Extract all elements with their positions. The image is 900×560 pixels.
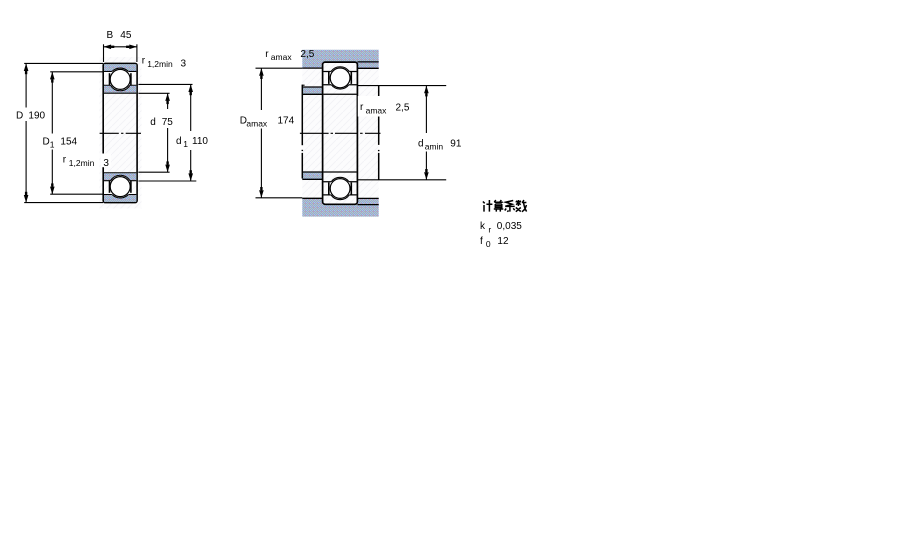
svg-text:k: k xyxy=(480,221,486,232)
svg-text:0,035: 0,035 xyxy=(497,221,522,232)
svg-text:d: d xyxy=(418,138,424,149)
svg-text:1,2min: 1,2min xyxy=(147,59,173,69)
svg-text:amax: amax xyxy=(271,52,293,62)
svg-text:1: 1 xyxy=(50,140,55,150)
svg-text:1,2min: 1,2min xyxy=(69,158,95,168)
svg-text:174: 174 xyxy=(278,115,295,126)
svg-text:0: 0 xyxy=(486,239,491,249)
svg-text:3: 3 xyxy=(103,158,109,169)
svg-text:75: 75 xyxy=(162,117,174,128)
svg-text:2,5: 2,5 xyxy=(300,49,314,60)
svg-text:amin: amin xyxy=(425,142,444,152)
svg-text:d: d xyxy=(150,117,156,128)
svg-text:r: r xyxy=(142,55,146,66)
svg-text:r: r xyxy=(488,224,491,234)
svg-text:B: B xyxy=(107,30,114,41)
svg-text:2,5: 2,5 xyxy=(396,102,410,113)
svg-text:D: D xyxy=(16,110,23,121)
svg-text:154: 154 xyxy=(60,137,77,148)
svg-text:110: 110 xyxy=(192,136,208,147)
svg-text:f: f xyxy=(480,236,483,247)
svg-text:amax: amax xyxy=(246,119,268,129)
svg-text:D: D xyxy=(43,137,50,148)
svg-text:r: r xyxy=(265,49,269,60)
svg-text:91: 91 xyxy=(450,138,462,149)
svg-text:3: 3 xyxy=(181,58,187,69)
svg-text:45: 45 xyxy=(120,30,132,41)
svg-text:190: 190 xyxy=(28,110,45,121)
svg-text:d: d xyxy=(176,136,182,147)
svg-text:amax: amax xyxy=(366,106,388,116)
svg-text:r: r xyxy=(63,155,67,166)
svg-text:12: 12 xyxy=(497,236,509,247)
svg-text:1: 1 xyxy=(183,139,188,149)
